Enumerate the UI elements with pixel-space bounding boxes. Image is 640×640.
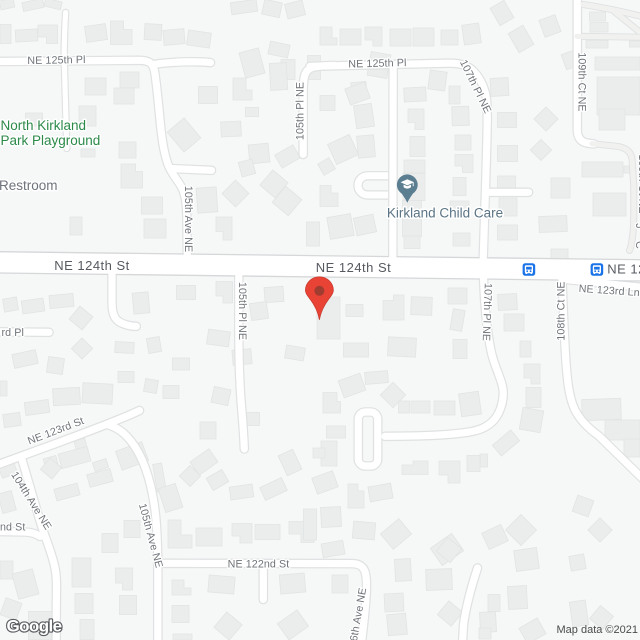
svg-text:Map data ©2021: Map data ©2021 [557, 624, 639, 636]
svg-text:Kirkland Child Care: Kirkland Child Care [387, 206, 503, 221]
svg-text:NE 122nd St: NE 122nd St [228, 559, 290, 571]
svg-text:105th Pl NE: 105th Pl NE [294, 82, 306, 140]
svg-text:108th Ct NE: 108th Ct NE [556, 281, 568, 340]
svg-text:109th Ct NE: 109th Ct NE [636, 154, 640, 213]
svg-text:North Kirkland: North Kirkland [1, 118, 87, 133]
svg-text:105th Ave NE: 105th Ave NE [182, 186, 194, 252]
svg-text:109th Ct NE: 109th Ct NE [576, 52, 588, 111]
svg-text:NE 124th St: NE 124th St [54, 258, 130, 273]
svg-text:C: C [633, 241, 640, 249]
svg-text:105th Pl NE: 105th Pl NE [236, 282, 248, 340]
svg-text:Google: Google [7, 617, 62, 636]
svg-text:NE 124th St: NE 124th St [607, 262, 640, 277]
svg-text:Restroom: Restroom [0, 178, 58, 193]
svg-text:J: J [633, 223, 640, 228]
svg-text:107th Pl NE: 107th Pl NE [480, 283, 494, 342]
svg-text:NE 125th Pl: NE 125th Pl [348, 57, 406, 71]
svg-text:Park Playground: Park Playground [1, 133, 101, 148]
svg-text:nd St: nd St [0, 522, 25, 534]
svg-text:NE 125th Pl: NE 125th Pl [27, 54, 85, 67]
svg-text:NE 124th St: NE 124th St [316, 260, 392, 275]
svg-text:rd Pl: rd Pl [2, 327, 24, 339]
